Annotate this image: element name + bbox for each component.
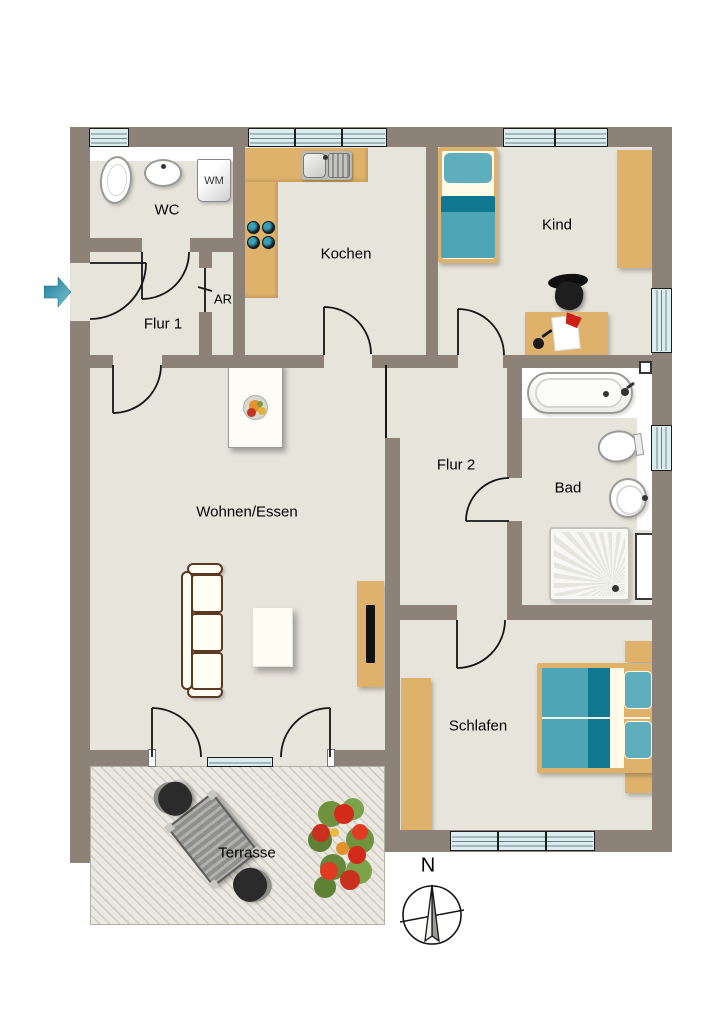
shower-drain <box>612 585 619 592</box>
wall-flur2-left <box>385 438 400 830</box>
window-glass-lines <box>250 130 385 145</box>
table-foot <box>208 879 219 890</box>
nightstand <box>625 641 652 662</box>
bed-blanket-fold <box>441 196 495 212</box>
wall-mid-d <box>503 355 653 368</box>
room-label-terrasse: Terrasse <box>218 845 276 862</box>
window-bad-side <box>651 425 672 471</box>
burner <box>247 221 260 234</box>
basin-inner <box>616 485 644 515</box>
flower-red <box>348 846 366 864</box>
table-foot <box>164 822 175 833</box>
fruit-leaf <box>257 401 263 407</box>
fruit-bowl <box>243 395 268 420</box>
terrace-door-frame-left <box>148 749 156 767</box>
bed-pillow <box>624 671 652 709</box>
window-glass-lines <box>209 759 271 765</box>
window-divider <box>545 831 547 851</box>
entrance-arrow-icon <box>44 276 72 308</box>
bed-split-line <box>542 717 650 719</box>
wall-bad-bottom <box>522 605 672 620</box>
bathtub <box>527 372 633 414</box>
room-label-bad: Bad <box>555 480 582 497</box>
tv-icon <box>366 605 375 663</box>
sofa-seat <box>191 613 223 652</box>
floor-schlafen-extension <box>400 766 652 830</box>
chair-seat <box>553 280 585 312</box>
faucet-icon <box>161 164 166 169</box>
window-kind-side <box>651 288 672 353</box>
window-glass-lines <box>653 427 670 469</box>
terrace-door-frame-right <box>327 749 335 767</box>
room-label-flur2: Flur 2 <box>437 457 475 474</box>
wall-mid-c <box>372 355 458 368</box>
wall-schlafen-top <box>398 605 457 620</box>
flower-red <box>334 804 354 824</box>
faucet-icon <box>642 495 648 501</box>
wall-right <box>652 147 672 852</box>
bed-pillow <box>624 721 652 759</box>
toilet-bowl <box>105 163 128 197</box>
tub-drain <box>603 391 609 397</box>
wardrobe-schlafen <box>401 678 431 830</box>
wall-flur2-right-lower <box>507 521 522 620</box>
vent-box <box>639 361 652 374</box>
compass-icon <box>398 881 466 949</box>
floor-plan: WM <box>0 0 724 1024</box>
desk-chair <box>548 274 588 314</box>
toilet-tank <box>633 433 644 456</box>
sink-icon <box>144 159 182 187</box>
room-label-ar: AR <box>214 292 232 307</box>
floor-entrance-opening <box>70 263 90 321</box>
sofa-seat <box>191 574 223 613</box>
wall-ar-stub-top <box>199 252 212 268</box>
sofa <box>181 563 224 698</box>
room-label-flur1: Flur 1 <box>144 316 182 333</box>
nightstand <box>625 772 652 793</box>
window-divider <box>497 831 499 851</box>
washbasin-round <box>609 478 647 518</box>
wardrobe-kind <box>617 150 652 268</box>
stove-icon <box>247 221 277 251</box>
flower-red <box>340 870 360 890</box>
wall-mid-a <box>90 355 113 368</box>
wall-flur2-right-upper <box>507 365 522 478</box>
fruit-red <box>247 408 256 417</box>
table-foot <box>206 789 217 800</box>
burner <box>262 236 275 249</box>
flower-orange <box>336 842 349 855</box>
window-kind-top <box>503 128 608 147</box>
room-label-schlafen: Schlafen <box>449 718 507 735</box>
desk-lamp-icon <box>533 338 544 349</box>
double-bed <box>537 663 654 773</box>
window-glass-lines <box>452 833 593 849</box>
wall-bottom-wohnen-left <box>90 750 155 766</box>
burner <box>247 236 260 249</box>
flower-yellow <box>330 828 339 837</box>
wall-left-upper <box>70 147 90 263</box>
compass-north-label: N <box>421 855 435 878</box>
room-label-wohnen: Wohnen/Essen <box>196 504 297 521</box>
tv-sideboard <box>357 581 384 687</box>
wall-mid-b <box>162 355 324 368</box>
wall-left-lower <box>70 321 90 863</box>
window-schlafen <box>450 831 595 851</box>
wall-wc-bottom-left <box>90 238 142 252</box>
terrace-door-sill <box>207 757 273 767</box>
window-divider <box>554 128 556 147</box>
washing-machine-label: WM <box>204 175 224 187</box>
coffee-table <box>252 607 293 667</box>
wall-kochen-kind <box>426 147 438 355</box>
window-glass-lines <box>653 290 670 351</box>
tub-inner <box>535 378 623 408</box>
burner <box>262 221 275 234</box>
wall-ar-stub-bottom <box>199 312 212 355</box>
flower-red <box>320 862 338 880</box>
room-label-kochen: Kochen <box>321 246 372 263</box>
shower <box>549 527 630 601</box>
window-wc <box>89 128 129 147</box>
kitchen-sink-icon <box>301 151 352 180</box>
sink-drainer <box>328 153 350 178</box>
flower-red <box>312 824 330 842</box>
single-bed <box>438 147 498 263</box>
bed-pillow <box>444 153 492 183</box>
toilet-icon-bad <box>596 427 647 469</box>
room-label-wc: WC <box>155 202 180 219</box>
window-divider <box>294 128 296 147</box>
faucet-icon <box>621 388 629 396</box>
window-kochen <box>248 128 387 147</box>
flower-red <box>352 824 368 840</box>
desk-lamp-arm <box>541 329 553 338</box>
window-glass-lines <box>91 130 127 145</box>
dining-table <box>228 362 283 448</box>
faucet-icon <box>323 155 328 160</box>
room-label-kind: Kind <box>542 217 572 234</box>
fruit-yellow <box>258 407 266 415</box>
sofa-seat <box>191 652 223 690</box>
desk <box>525 312 608 355</box>
wall-kochen-left <box>233 147 245 355</box>
flower-bed <box>308 798 376 902</box>
window-divider <box>341 128 343 147</box>
